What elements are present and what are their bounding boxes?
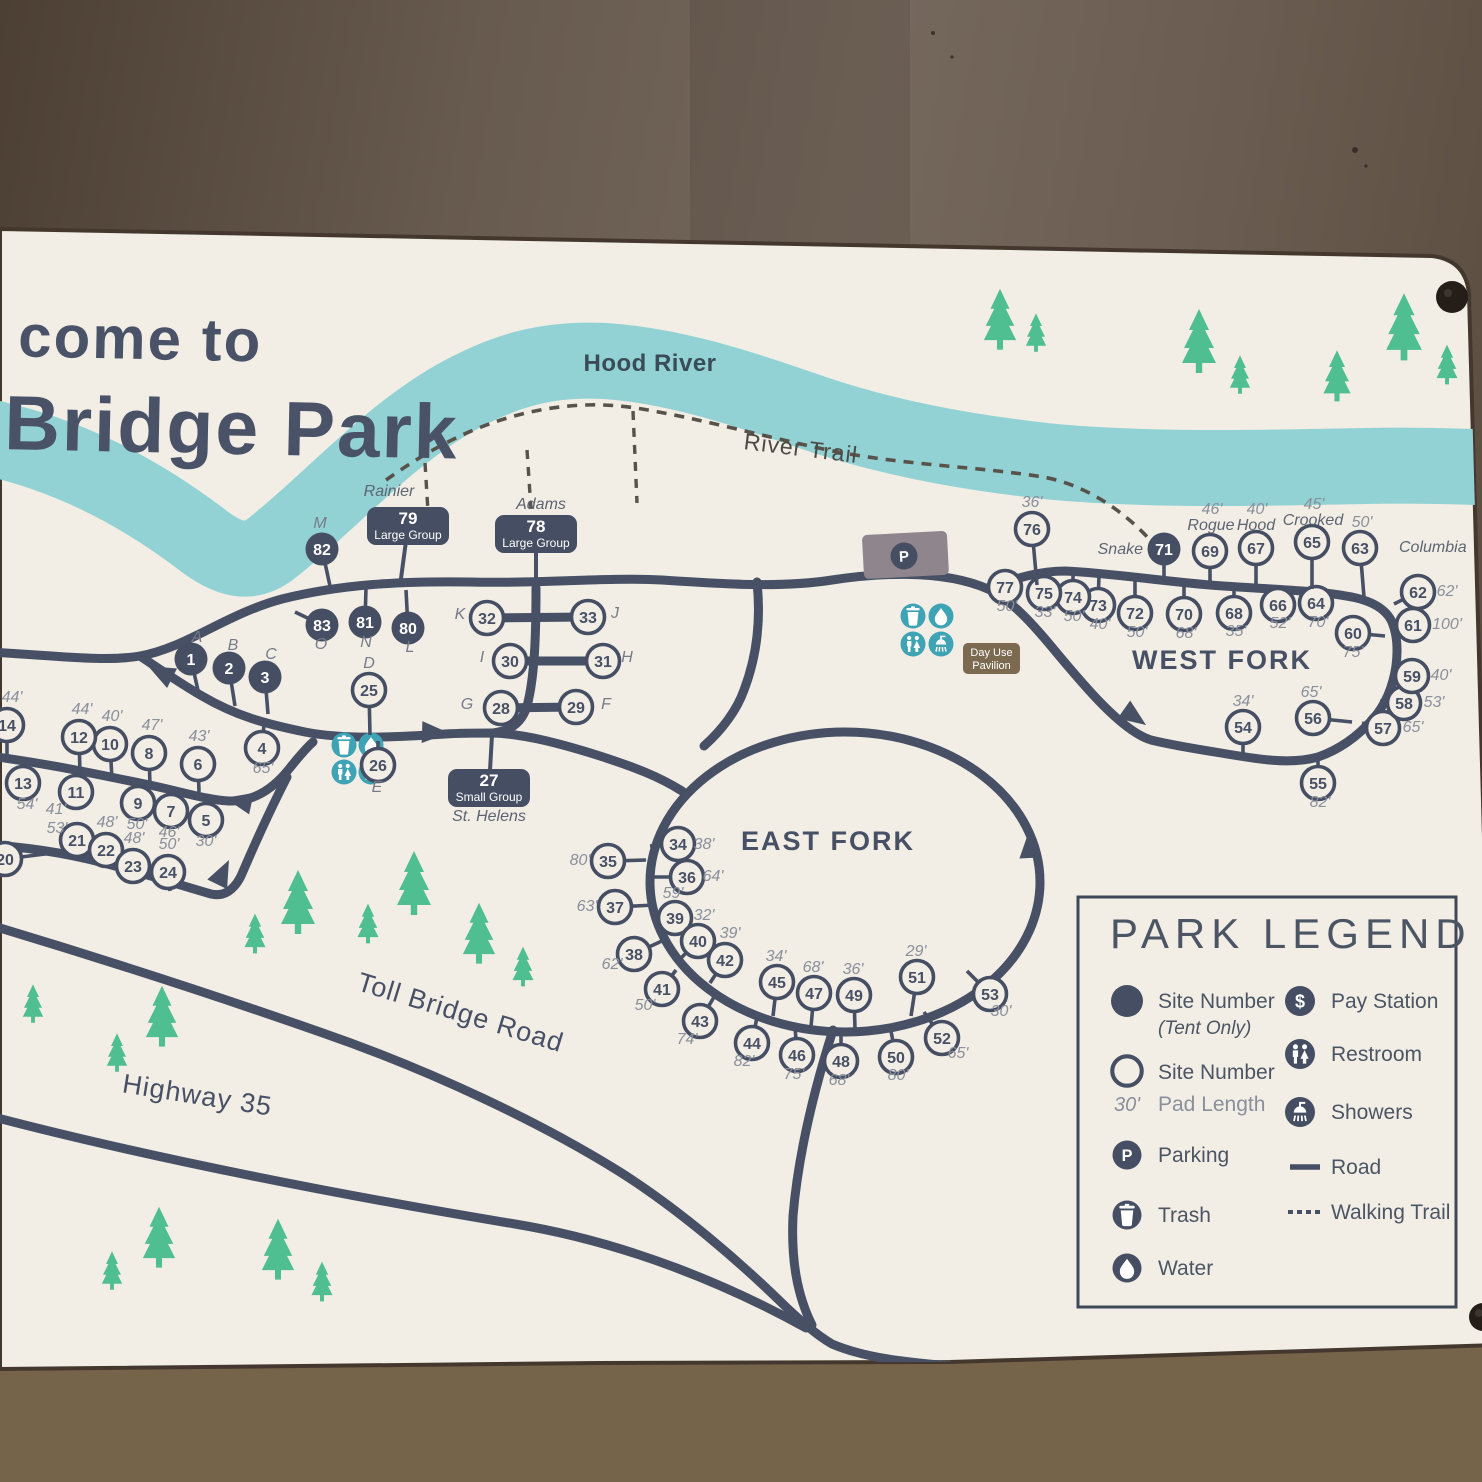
pad-length: 70' bbox=[1308, 614, 1330, 631]
site-number: 38 bbox=[625, 947, 643, 964]
site-number: 59 bbox=[1403, 669, 1421, 686]
legend-label: Parking bbox=[1158, 1144, 1229, 1167]
pad-length: 100' bbox=[1432, 616, 1463, 633]
legend-label: Trash bbox=[1158, 1204, 1211, 1227]
site-number: 26 bbox=[369, 758, 387, 775]
spur-name: Rainier bbox=[364, 483, 415, 500]
site-number: 63 bbox=[1351, 541, 1369, 558]
site-number: 50 bbox=[887, 1050, 905, 1067]
pay-icon: $ bbox=[1285, 986, 1315, 1016]
shower-icon bbox=[1285, 1097, 1315, 1127]
group-site-label: Large Group bbox=[374, 528, 442, 542]
site-number: 14 bbox=[0, 718, 16, 735]
site-letter: M bbox=[313, 515, 327, 532]
trash-icon bbox=[1113, 1201, 1142, 1230]
title-line2: Bridge Park bbox=[4, 380, 460, 475]
site-number: 71 bbox=[1155, 542, 1173, 559]
pad-length: 34' bbox=[1233, 693, 1255, 710]
pad-length: 48' bbox=[97, 814, 119, 831]
site-number: 55 bbox=[1309, 776, 1327, 793]
group-site-label: Large Group bbox=[502, 536, 570, 550]
sign-bolt bbox=[1436, 281, 1468, 313]
site-number: 70 bbox=[1175, 607, 1193, 624]
water-icon bbox=[929, 604, 954, 629]
pad-length: 40' bbox=[1431, 667, 1453, 684]
site-number: 25 bbox=[360, 683, 378, 700]
east-fork-label: EAST FORK bbox=[741, 826, 915, 856]
wall-speck bbox=[950, 55, 953, 58]
pad-length: 74' bbox=[677, 1031, 699, 1048]
site-letter: L bbox=[406, 639, 415, 656]
pad-length: 75' bbox=[784, 1066, 806, 1083]
pad-length: 68' bbox=[1176, 625, 1198, 642]
pad-length: 59' bbox=[663, 885, 685, 902]
site-number: 11 bbox=[68, 785, 85, 802]
site-number: 51 bbox=[908, 970, 926, 987]
site-number: 28 bbox=[492, 701, 510, 718]
site-number: 41 bbox=[653, 982, 671, 999]
svg-text:$: $ bbox=[1295, 992, 1305, 1012]
spur-name: Crooked bbox=[1283, 512, 1345, 529]
group-site-number: 78 bbox=[527, 517, 546, 536]
pad-length: 50' bbox=[159, 836, 181, 853]
pad-length: 40' bbox=[102, 708, 124, 725]
site-number: 82 bbox=[313, 542, 331, 559]
site-number: 1 bbox=[187, 652, 196, 669]
title-line1: come to bbox=[18, 302, 263, 374]
pad-length: 50' bbox=[1352, 514, 1374, 531]
day-use-line1: Day Use bbox=[970, 647, 1012, 659]
legend-label2: (Tent Only) bbox=[1158, 1018, 1251, 1039]
pad-length: 65' bbox=[948, 1045, 970, 1062]
west-fork-label: WEST FORK bbox=[1132, 645, 1312, 675]
site-number: 29 bbox=[567, 700, 585, 717]
pad-length: 50' bbox=[1064, 608, 1086, 625]
site-number: 81 bbox=[356, 615, 374, 632]
site-letter: J bbox=[610, 605, 620, 622]
site-number: 62 bbox=[1409, 585, 1427, 602]
site-number: 24 bbox=[159, 865, 177, 882]
pad-length: 62' bbox=[602, 956, 624, 973]
pad-length: 35' bbox=[1226, 623, 1248, 640]
parking-letter: P bbox=[899, 548, 910, 566]
pad-length: 32' bbox=[694, 907, 716, 924]
legend-label: Restroom bbox=[1331, 1043, 1422, 1066]
shower-icon bbox=[929, 632, 954, 657]
site-number: 33 bbox=[579, 610, 597, 627]
site-number: 75 bbox=[1035, 586, 1053, 603]
day-use-line2: Pavilion bbox=[972, 660, 1011, 672]
site-number: 37 bbox=[606, 900, 624, 917]
pad-length: 80' bbox=[888, 1067, 910, 1084]
pad-length: 40' bbox=[1247, 501, 1269, 518]
restroom-icon bbox=[901, 632, 926, 657]
group-site-number: 27 bbox=[480, 771, 499, 790]
legend-item-water: Water bbox=[1113, 1254, 1214, 1283]
legend-label2: Pad Length bbox=[1158, 1093, 1265, 1116]
site-letter: C bbox=[265, 646, 277, 663]
site-number: 2 bbox=[225, 661, 234, 678]
site-letter: H bbox=[621, 649, 633, 666]
river-label: Hood River bbox=[583, 350, 716, 377]
parking-lot: P bbox=[862, 531, 949, 579]
site-number: 58 bbox=[1395, 696, 1413, 713]
pad-length: 48' bbox=[124, 830, 146, 847]
pad-length: 34' bbox=[766, 948, 788, 965]
spur-name: St. Helens bbox=[452, 808, 526, 825]
sign-bolt-highlight bbox=[1444, 289, 1452, 297]
pad-length: 50' bbox=[1127, 624, 1149, 641]
wall-speck bbox=[1364, 164, 1367, 167]
site-number: 67 bbox=[1247, 541, 1265, 558]
site-number: 57 bbox=[1374, 721, 1392, 738]
trash-icon bbox=[332, 733, 357, 758]
pad-length: 53' bbox=[47, 820, 69, 837]
pad-length: 43' bbox=[189, 728, 211, 745]
site-number: 7 bbox=[167, 804, 176, 821]
pad-length: 65' bbox=[1301, 684, 1323, 701]
site-number: 45 bbox=[768, 975, 786, 992]
pad-length: 44' bbox=[2, 689, 24, 706]
site-number: 69 bbox=[1201, 544, 1219, 561]
pad-length: 68' bbox=[829, 1072, 851, 1089]
legend-item-trash: Trash bbox=[1113, 1201, 1211, 1230]
pad-length: 38' bbox=[694, 836, 716, 853]
pad-length: 65' bbox=[1403, 719, 1425, 736]
trash-icon bbox=[901, 604, 926, 629]
group-site-number: 79 bbox=[399, 509, 418, 528]
site-number: 8 bbox=[145, 746, 154, 763]
site-number: 61 bbox=[1404, 618, 1422, 635]
pad-length: 63' bbox=[577, 898, 599, 915]
site-letter: G bbox=[461, 696, 473, 713]
pad-length: 41' bbox=[46, 801, 68, 818]
legend-item-restroom: Restroom bbox=[1285, 1039, 1422, 1069]
site-number: 35 bbox=[599, 854, 617, 871]
site-number: 5 bbox=[202, 813, 211, 830]
site-number: 49 bbox=[845, 988, 863, 1005]
site-number: 40 bbox=[689, 934, 707, 951]
site-number: 56 bbox=[1304, 711, 1322, 728]
site-number: 9 bbox=[134, 796, 143, 813]
legend-label: Road bbox=[1331, 1156, 1381, 1179]
pad-length: 52' bbox=[1270, 615, 1292, 632]
site-number: 39 bbox=[666, 911, 684, 928]
site-number: 74 bbox=[1064, 590, 1082, 607]
legend-label: Showers bbox=[1331, 1101, 1413, 1124]
pad-length: 68' bbox=[803, 959, 825, 976]
park-legend: PARK LEGENDSite Number(Tent Only)30'Site… bbox=[1078, 897, 1472, 1307]
parking-icon: P bbox=[1113, 1141, 1142, 1170]
pad-length: 75' bbox=[1343, 644, 1365, 661]
legend-pad-length: 30' bbox=[1114, 1094, 1141, 1116]
legend-title: PARK LEGEND bbox=[1110, 910, 1472, 957]
site-number: 43 bbox=[691, 1014, 709, 1031]
pad-length: 82' bbox=[734, 1053, 756, 1070]
site-number: 42 bbox=[716, 953, 734, 970]
wall-speck bbox=[931, 31, 935, 35]
legend-item-shower: Showers bbox=[1285, 1097, 1413, 1127]
pad-length: 82' bbox=[1310, 794, 1332, 811]
site-number: 48 bbox=[832, 1054, 850, 1071]
site-letter: E bbox=[372, 779, 383, 796]
site-number: 10 bbox=[101, 737, 119, 754]
site-number: 54 bbox=[1234, 720, 1252, 737]
site-letter: D bbox=[363, 655, 375, 672]
site-number: 23 bbox=[124, 859, 142, 876]
pad-length: 44' bbox=[72, 701, 94, 718]
pad-length: 45' bbox=[1304, 496, 1326, 513]
park-map-svg: Hood RiverRiver TrailToll Bridge RoadHig… bbox=[0, 0, 1482, 1482]
site-letter: I bbox=[480, 649, 485, 666]
site-number: 77 bbox=[996, 580, 1014, 597]
site-number: 32 bbox=[478, 611, 496, 628]
spur-name: Adams bbox=[515, 496, 566, 513]
site-letter: B bbox=[228, 637, 239, 654]
wall-speck bbox=[1352, 147, 1358, 153]
site-number: 83 bbox=[313, 618, 331, 635]
legend-label: Site Number bbox=[1158, 1061, 1275, 1084]
site-number: 66 bbox=[1269, 598, 1287, 615]
spur-name: Snake bbox=[1098, 541, 1143, 558]
site-number: 65 bbox=[1303, 535, 1321, 552]
spur-name: Rogue bbox=[1187, 517, 1234, 534]
site-number: 3 bbox=[261, 670, 270, 687]
pad-length: 47' bbox=[142, 717, 164, 734]
spur-name: Hood bbox=[1237, 517, 1276, 534]
legend-label: Pay Station bbox=[1331, 990, 1438, 1013]
water-icon bbox=[1113, 1254, 1142, 1283]
legend-label: Water bbox=[1158, 1257, 1213, 1280]
pad-length: 80' bbox=[570, 852, 592, 869]
site-number: 30 bbox=[501, 654, 519, 671]
pad-length: 64' bbox=[703, 868, 725, 885]
site-number: 12 bbox=[70, 730, 88, 747]
site-number: 6 bbox=[194, 757, 203, 774]
site-number: 80 bbox=[399, 621, 417, 638]
pad-length: 40' bbox=[1090, 616, 1112, 633]
site-letter: F bbox=[601, 696, 612, 713]
site-number: 60 bbox=[1344, 626, 1362, 643]
legend-item-pay: $Pay Station bbox=[1285, 986, 1438, 1016]
pad-length: 39' bbox=[720, 925, 742, 942]
site-number: 31 bbox=[594, 654, 612, 671]
site-number: 34 bbox=[669, 837, 687, 854]
pad-length: 29' bbox=[905, 943, 928, 960]
site-number: 47 bbox=[805, 986, 823, 1003]
pad-length: 65' bbox=[253, 760, 275, 777]
site-letter: A bbox=[191, 629, 203, 646]
legend-label: Site Number bbox=[1158, 990, 1275, 1013]
legend-label: Walking Trail bbox=[1331, 1201, 1450, 1224]
site-number: 4 bbox=[258, 741, 267, 758]
pad-length: 50' bbox=[635, 997, 657, 1014]
site-number: 44 bbox=[743, 1036, 761, 1053]
site-number: 68 bbox=[1225, 606, 1243, 623]
site-number: 21 bbox=[68, 833, 86, 850]
legend-item-parking: PParking bbox=[1113, 1141, 1230, 1170]
pad-length: 62' bbox=[1437, 583, 1459, 600]
photo-of-park-map-sign: Hood RiverRiver TrailToll Bridge RoadHig… bbox=[0, 0, 1482, 1482]
site-letter: N bbox=[360, 634, 372, 651]
site-number: 72 bbox=[1126, 606, 1144, 623]
pad-length: 36' bbox=[843, 961, 865, 978]
pad-length: 30' bbox=[991, 1003, 1013, 1020]
restroom-icon bbox=[1285, 1039, 1315, 1069]
pad-length: 50' bbox=[997, 598, 1019, 615]
restroom-icon bbox=[332, 760, 357, 785]
site-number: 64 bbox=[1307, 596, 1325, 613]
site-letter: O bbox=[315, 636, 327, 653]
site-number: 13 bbox=[14, 776, 32, 793]
site-number: 73 bbox=[1089, 598, 1107, 615]
pad-length: 36' bbox=[1022, 494, 1044, 511]
group-site-label: Small Group bbox=[456, 790, 523, 804]
site-number: 22 bbox=[97, 843, 115, 860]
pad-length: 33' bbox=[1035, 604, 1057, 621]
site-letter: K bbox=[455, 606, 467, 623]
spur-name: Columbia bbox=[1399, 539, 1467, 556]
site-number: 53 bbox=[981, 987, 999, 1004]
pad-length: 46' bbox=[1202, 501, 1224, 518]
site-number: 46 bbox=[788, 1048, 806, 1065]
pad-length: 30' bbox=[196, 833, 218, 850]
site-filled-icon bbox=[1111, 985, 1143, 1017]
pad-length: 53' bbox=[1424, 694, 1446, 711]
svg-text:P: P bbox=[1122, 1147, 1133, 1165]
pad-length: 54' bbox=[17, 796, 39, 813]
site-number: 20 bbox=[0, 852, 14, 869]
site-number: 76 bbox=[1023, 522, 1041, 539]
